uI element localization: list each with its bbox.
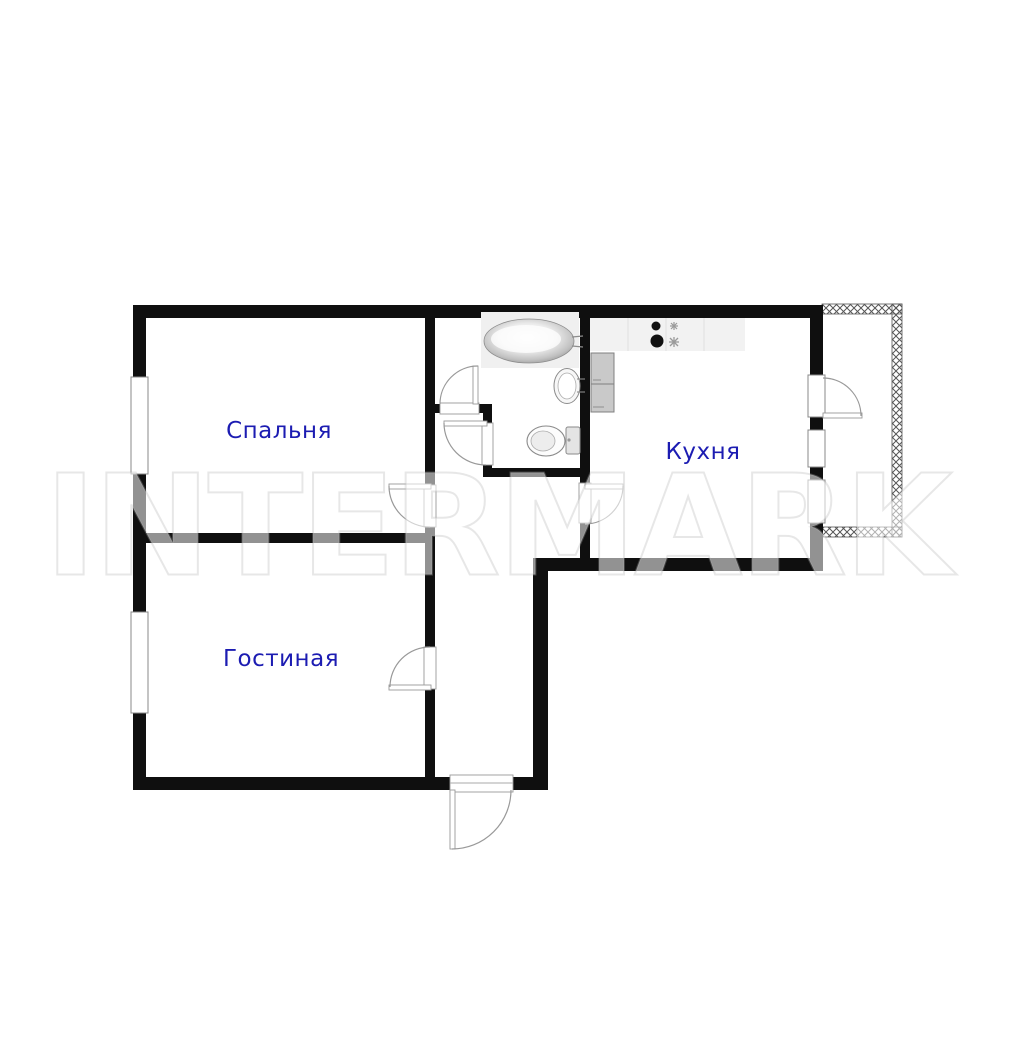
room-label-kitchen: Кухня (666, 439, 741, 465)
window-balcony-2 (808, 480, 825, 523)
opening-wc-door (482, 423, 493, 465)
door-leaf (389, 685, 431, 690)
toilet-icon (527, 426, 580, 456)
door-bathroom (440, 366, 478, 404)
kitchen-fixtures (590, 318, 745, 412)
window-bedroom (131, 377, 148, 474)
burner-large (651, 335, 664, 348)
wall-kitchen-bottom (533, 558, 823, 571)
door-leaf (444, 421, 487, 426)
burner-small (652, 322, 661, 331)
burner-asterisk (669, 337, 679, 347)
room-label-living-room: Гостиная (223, 646, 339, 672)
window-living-room (131, 612, 148, 713)
balcony-railing-hatch (822, 527, 902, 537)
burner-asterisk (670, 322, 678, 330)
entrance-threshold (450, 775, 513, 792)
wall-corridor-right (533, 558, 548, 790)
bathroom-fixtures (481, 312, 585, 456)
door-openings (424, 403, 591, 792)
balcony-railing-hatch (892, 304, 902, 537)
balcony-floor (822, 304, 902, 537)
balcony-railing-hatch (822, 304, 902, 314)
opening-living-door (424, 647, 436, 689)
door-leaf (585, 484, 623, 489)
door-leaf (473, 366, 478, 404)
door-leaf (450, 790, 455, 849)
door-leaf (389, 484, 431, 489)
kitchen-counter-icon (590, 318, 745, 351)
door-arc (452, 790, 511, 849)
bathtub-icon (481, 312, 583, 368)
window-balcony-1 (808, 430, 825, 467)
room-label-bedroom: Спальня (226, 418, 332, 444)
door-entrance (450, 790, 511, 849)
wall-wc-bottom (483, 468, 590, 477)
opening-bedroom-door (424, 485, 436, 527)
wall-bedroom-living-divider (133, 533, 435, 543)
fridge-icon (591, 353, 614, 412)
door-leaf (823, 413, 862, 418)
floor-plan-canvas: INTERMARK Спальня Гостиная Кухня (0, 0, 1018, 1041)
door-arc (444, 423, 486, 465)
opening-bathroom-door (440, 403, 479, 414)
door-arc (440, 366, 478, 404)
floor-plan-svg (0, 0, 1018, 1041)
balcony-door-opening (808, 375, 825, 417)
door-wc (444, 421, 487, 465)
balcony (822, 304, 902, 537)
wall-outer-top (133, 305, 823, 318)
